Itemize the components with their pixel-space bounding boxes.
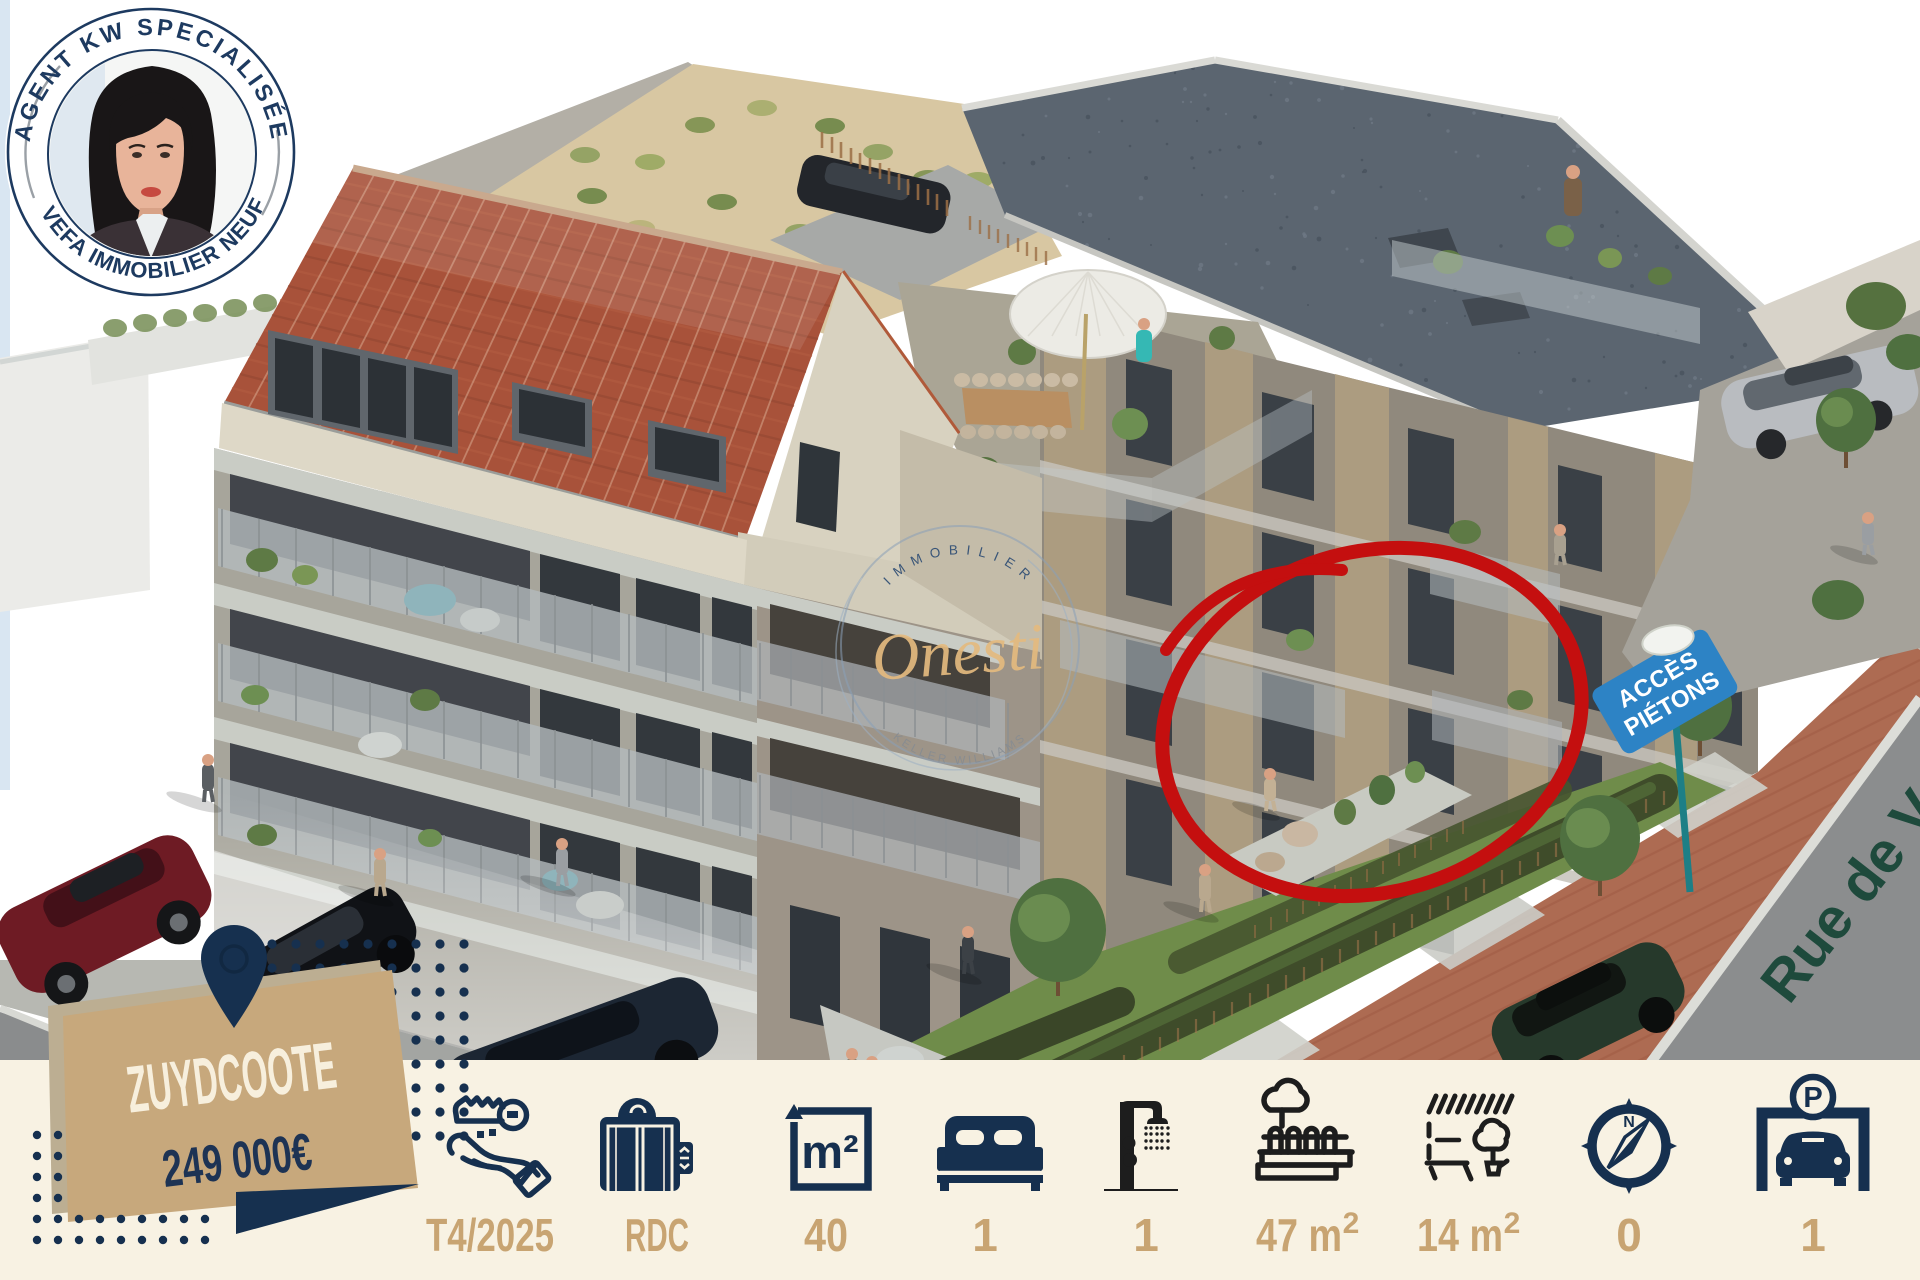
svg-text:40: 40: [804, 1209, 848, 1261]
svg-text:14 m: 14 m: [1417, 1209, 1503, 1261]
svg-text:1: 1: [1800, 1209, 1826, 1261]
svg-text:N: N: [1623, 1114, 1635, 1131]
svg-text:P: P: [1803, 1082, 1822, 1114]
svg-text:Onesti: Onesti: [869, 610, 1046, 695]
svg-text:2: 2: [1343, 1207, 1360, 1240]
svg-text:2: 2: [1504, 1207, 1521, 1240]
svg-text:m²: m²: [801, 1125, 858, 1178]
svg-text:1: 1: [1133, 1209, 1159, 1261]
svg-text:RDC: RDC: [625, 1209, 689, 1261]
svg-text:T4/2025: T4/2025: [426, 1209, 554, 1261]
svg-text:0: 0: [1616, 1209, 1642, 1261]
svg-text:1: 1: [972, 1209, 998, 1261]
svg-text:47 m: 47 m: [1256, 1209, 1342, 1261]
